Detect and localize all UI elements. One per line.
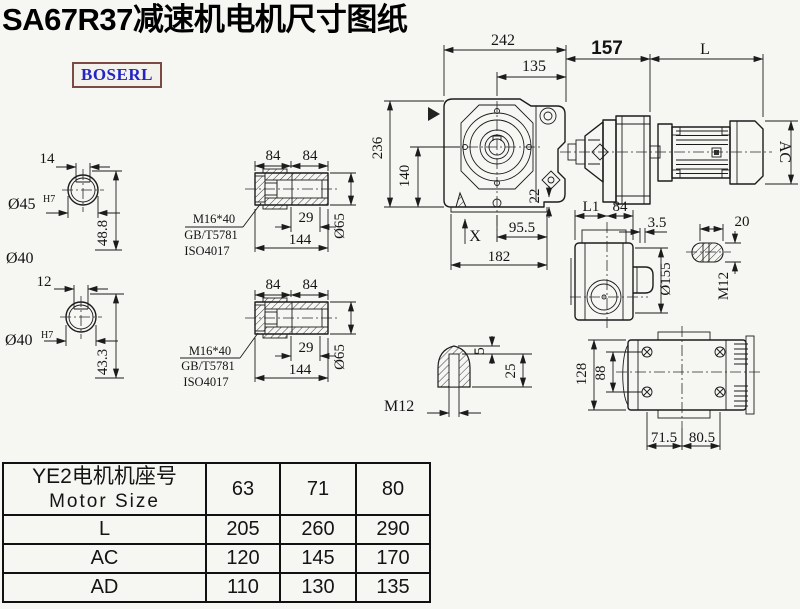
dim-seg-a: 84 [266,148,282,164]
dim-length: 144 [289,362,312,378]
label-std: GB/T5781 [181,359,234,373]
label-screw: M16*40 [189,344,231,358]
dim-axis-height: 140 [397,165,413,188]
AD-71: 130 [280,573,356,602]
L-63: 205 [206,515,280,544]
view-output-shaft-top: 14 Ø45 H7 48.8 Ø40 [6,151,122,267]
table-row-AD: AD 110 130 135 [3,573,430,602]
header-cn: YE2电机机座号 [4,464,205,490]
dim-bore: Ø40 [5,332,33,349]
dim-overall-height: 236 [370,136,386,159]
dim-bore-fit: H7 [41,330,53,341]
dim-land: 5 [472,347,488,355]
AD-63: 110 [206,573,280,602]
brand-logo: BOSERL [72,62,162,88]
dim-flange-dia: Ø155 [658,262,674,295]
page-title: SA67R37减速机电机尺寸图纸 [2,0,407,39]
motor-size-table: YE2电机机座号 Motor Size 63 71 80 L 205 260 2… [2,462,431,603]
table-row-AC: AC 120 145 170 [3,544,430,573]
mark-x: X [469,228,481,245]
dim-keyway-width: 14 [40,151,56,167]
dim-foot-half: 95.5 [509,220,535,236]
view-motor-side: 157 L AC [560,38,798,204]
view-bushing-top: 84 84 29 144 Ø65 M16*40 GB/T5781 ISO4017 [184,148,356,258]
table-row-L: L 205 260 290 [3,515,430,544]
dim-bolt-spacing: 88 [593,366,609,381]
dim-adapter-length: 157 [591,38,623,59]
dim-base-width: 182 [488,249,511,265]
dim-alt-bore: Ø40 [6,250,34,267]
drawing-sheet: 14 Ø45 H7 48.8 Ø40 12 Ø40 H7 [0,0,800,609]
dim-seg-b: 84 [303,148,319,164]
dim-dia: Ø65 [332,213,348,239]
dim-overall-width: 242 [491,32,515,49]
size-71: 71 [280,463,356,515]
label-iso: ISO4017 [183,375,228,389]
label-std: GB/T5781 [184,228,237,242]
row-label-L: L [3,515,206,544]
dim-bolt-depth: 29 [299,340,314,356]
AC-63: 120 [206,544,280,573]
dim-flange-t: 3.5 [648,215,667,231]
dim-dia: Ø65 [332,344,348,370]
dim-seg-b: 84 [303,277,319,293]
brand-logo-text: BOSERL [81,65,153,84]
header-en: Motor Size [4,490,205,514]
view-output-shaft-bottom: 12 Ø40 H7 43.3 [5,274,124,378]
dim-center-to-face: 135 [522,58,546,75]
view-gearbox-side: L1 84 3.5 Ø155 20 M12 [570,199,750,330]
AC-71: 145 [280,544,356,573]
AD-80: 135 [356,573,430,602]
dim-length: 144 [289,232,312,248]
dim-step: 22 [527,189,543,204]
header-motor-size: YE2电机机座号 Motor Size [3,463,206,515]
row-label-AD: AD [3,573,206,602]
dim-l1: L1 [583,199,600,215]
dim-plug-thread: M12 [716,272,732,300]
datum-mark [428,107,440,121]
dim-thread: M12 [384,398,414,415]
dim-keyway-width: 12 [37,274,52,290]
label-iso: ISO4017 [184,244,229,258]
dim-seg-a: 84 [266,277,282,293]
size-80: 80 [356,463,430,515]
table-header-row: YE2电机机座号 Motor Size 63 71 80 [3,463,430,515]
dim-bolt-depth: 29 [299,210,314,226]
view-plug-detail: M12 5 25 [384,336,532,417]
dim-width: 128 [574,363,590,386]
dim-w84: 84 [613,199,629,215]
dim-keyway-depth: 43.3 [95,349,111,375]
dim-bore-fit: H7 [43,194,55,205]
row-label-AC: AC [3,544,206,573]
view-bushing-bottom: 84 84 29 144 Ø65 M16*40 GB/T5781 ISO4017 [180,277,356,389]
dim-right: 80.5 [689,430,715,446]
L-80: 290 [356,515,430,544]
dim-motor-dia: AC [776,141,793,163]
AC-80: 170 [356,544,430,573]
view-gearbox-top: 128 88 71.5 80.5 [574,326,762,450]
dim-height: 25 [503,364,519,379]
dim-keyway-depth: 48.8 [95,220,111,246]
label-screw: M16*40 [193,212,235,226]
dim-plug-len: 20 [735,214,750,230]
L-71: 260 [280,515,356,544]
dim-bore: Ø45 [8,196,36,213]
view-gearbox-front: 242 135 236 140 22 X 95.5 182 [370,32,566,270]
dim-motor-length: L [700,41,710,58]
dim-left: 71.5 [651,430,677,446]
size-63: 63 [206,463,280,515]
